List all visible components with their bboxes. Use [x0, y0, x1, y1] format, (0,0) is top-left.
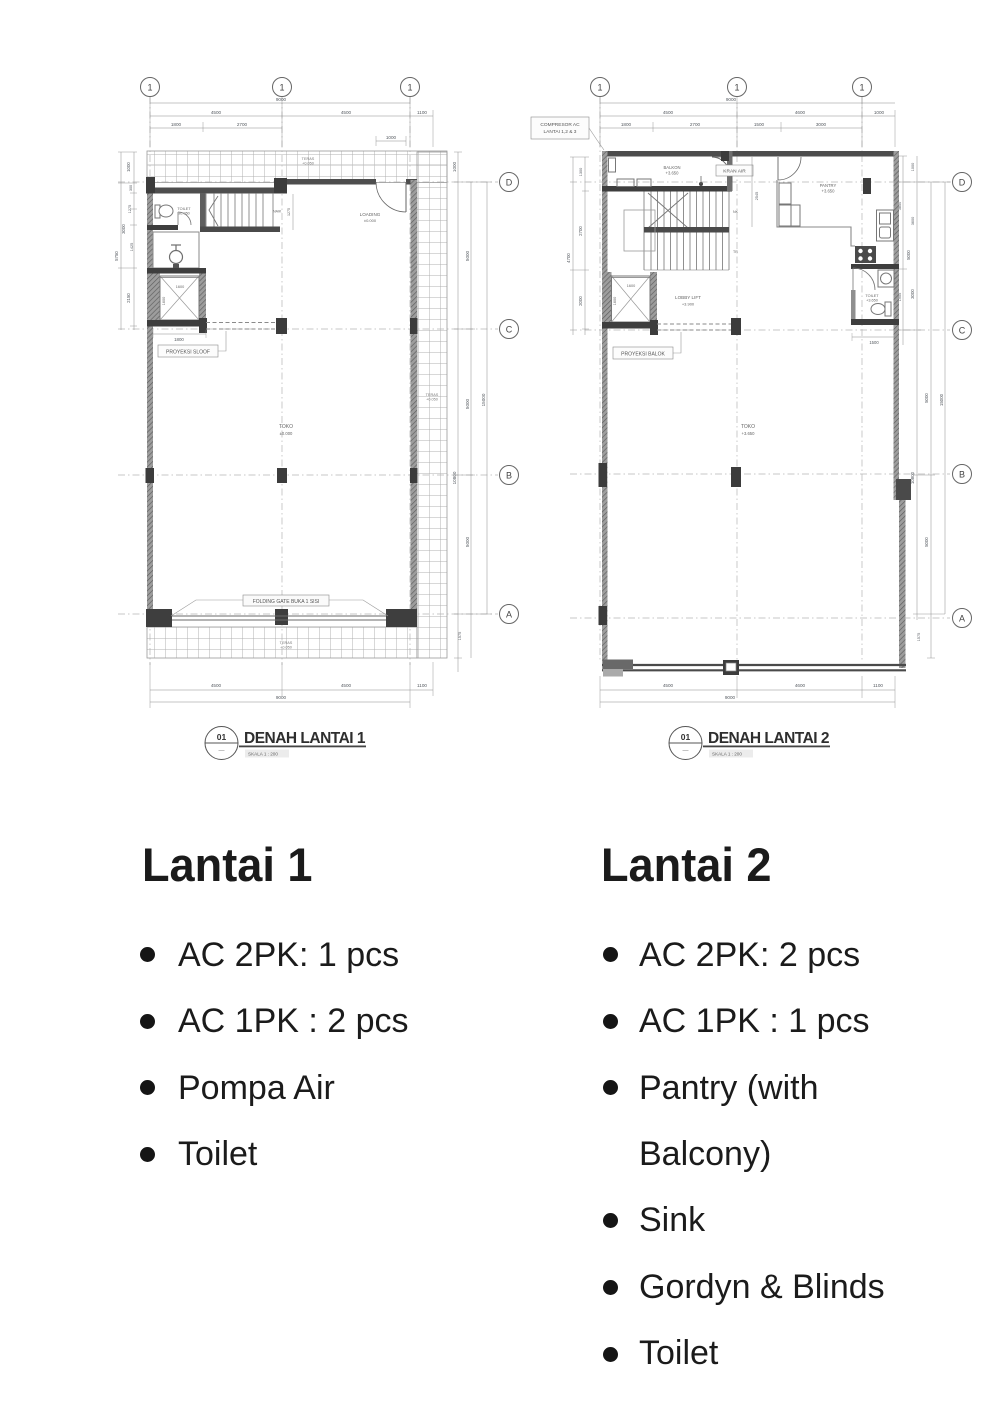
svg-text:4500: 4500: [211, 110, 222, 115]
svg-text:2545: 2545: [755, 192, 759, 200]
svg-text:1800: 1800: [621, 122, 632, 127]
svg-text:FOLDING GATE BUKA 1 SISI: FOLDING GATE BUKA 1 SISI: [253, 599, 320, 605]
svg-text:4500: 4500: [341, 683, 352, 688]
svg-text:9000: 9000: [725, 695, 736, 700]
svg-text:4500: 4500: [663, 110, 674, 115]
svg-text:B: B: [506, 471, 512, 481]
svg-text:1275: 1275: [287, 208, 291, 216]
svg-text:A: A: [506, 610, 512, 620]
svg-text:01: 01: [681, 732, 691, 742]
svg-text:—: —: [683, 748, 689, 754]
svg-text:2700: 2700: [690, 122, 701, 127]
svg-text:1600: 1600: [627, 284, 635, 288]
svg-text:5000: 5000: [924, 393, 929, 403]
svg-text:3000: 3000: [910, 289, 915, 299]
svg-text:TOILET: TOILET: [865, 294, 879, 298]
svg-text:1425: 1425: [130, 243, 134, 251]
svg-text:+3.650: +3.650: [742, 431, 756, 436]
svg-text:TOILET: TOILET: [177, 207, 191, 211]
svg-text:3000: 3000: [121, 224, 126, 234]
svg-text:PANTRY: PANTRY: [820, 183, 837, 188]
svg-text:—: —: [219, 748, 225, 754]
svg-text:COMPRESOR AC: COMPRESOR AC: [540, 122, 580, 128]
svg-text:4500: 4500: [341, 110, 352, 115]
svg-text:1800: 1800: [174, 337, 184, 342]
svg-text:1: 1: [734, 83, 739, 93]
svg-text:LOBBY LIFT: LOBBY LIFT: [675, 295, 701, 300]
svg-text:1000: 1000: [126, 162, 131, 172]
svg-text:DENAH LANTAI 1: DENAH LANTAI 1: [244, 730, 366, 747]
svg-text:1000: 1000: [452, 161, 457, 172]
svg-text:+3.650: +3.650: [666, 171, 680, 176]
svg-text:1600: 1600: [162, 297, 166, 305]
svg-text:TERAS: TERAS: [426, 393, 439, 397]
svg-text:BALKON: BALKON: [664, 165, 681, 170]
svg-text:LOADING: LOADING: [360, 212, 381, 217]
svg-text:1600: 1600: [613, 297, 617, 305]
svg-text:TOKO: TOKO: [741, 424, 755, 430]
svg-text:PROYEKSI SLOOF: PROYEKSI SLOOF: [166, 350, 210, 356]
svg-text:1575: 1575: [458, 632, 462, 640]
svg-text:TR: TR: [733, 250, 738, 254]
svg-text:+3.900: +3.900: [682, 302, 695, 307]
svg-text:4600: 4600: [795, 110, 806, 115]
svg-text:SKALA 1 : 200: SKALA 1 : 200: [248, 752, 278, 757]
svg-text:3600: 3600: [911, 217, 915, 225]
svg-text:1: 1: [597, 83, 602, 93]
svg-text:1575: 1575: [917, 633, 921, 641]
svg-text:B: B: [959, 470, 965, 480]
svg-text:1100: 1100: [417, 110, 427, 115]
svg-text:TERAS: TERAS: [280, 641, 293, 645]
svg-text:2700: 2700: [578, 226, 583, 236]
svg-text:KRAN AIR: KRAN AIR: [723, 169, 746, 175]
svg-text:PROYEKSI BALOK: PROYEKSI BALOK: [621, 352, 665, 358]
svg-text:9000: 9000: [726, 97, 737, 102]
svg-text:5000: 5000: [906, 250, 911, 260]
svg-text:9000: 9000: [276, 695, 287, 700]
svg-text:+0.050: +0.050: [302, 162, 314, 166]
svg-text:NK: NK: [733, 210, 739, 214]
svg-text:4500: 4500: [211, 683, 222, 688]
svg-text:2150: 2150: [126, 293, 131, 303]
svg-text:1000: 1000: [911, 163, 915, 171]
svg-text:D: D: [959, 178, 966, 188]
svg-text:10800: 10800: [452, 471, 457, 484]
svg-text:TOKO: TOKO: [279, 424, 293, 430]
svg-text:5000: 5000: [924, 537, 929, 547]
svg-text:1: 1: [279, 83, 284, 93]
svg-text:2700: 2700: [237, 122, 248, 127]
svg-text:9000: 9000: [276, 97, 287, 102]
svg-text:1: 1: [147, 83, 152, 93]
svg-text:4700: 4700: [566, 253, 571, 263]
svg-text:1300: 1300: [579, 168, 583, 176]
svg-text:01: 01: [217, 732, 227, 742]
svg-text:1: 1: [407, 83, 412, 93]
svg-text:C: C: [506, 325, 513, 335]
svg-text:1600: 1600: [176, 285, 184, 289]
svg-text:1100: 1100: [417, 683, 427, 688]
svg-text:+0.050: +0.050: [426, 398, 438, 402]
svg-text:SKALA 1 : 200: SKALA 1 : 200: [712, 752, 742, 757]
svg-text:4500: 4500: [663, 683, 674, 688]
svg-text:DENAH LANTAI 2: DENAH LANTAI 2: [708, 730, 829, 747]
svg-text:5000: 5000: [465, 536, 470, 547]
svg-text:A: A: [959, 614, 965, 624]
svg-text:5750: 5750: [114, 251, 119, 261]
svg-text:+0.050: +0.050: [280, 646, 292, 650]
svg-text:1: 1: [859, 83, 864, 93]
svg-text:3000: 3000: [816, 122, 827, 127]
svg-text:1500: 1500: [869, 340, 879, 345]
svg-text:1275: 1275: [128, 205, 132, 213]
svg-text:1500: 1500: [754, 122, 765, 127]
svg-text:1800: 1800: [171, 122, 182, 127]
svg-text:NAIK: NAIK: [273, 210, 282, 214]
svg-text:TERAS: TERAS: [302, 157, 315, 161]
svg-text:LANTAI 1,2 & 3: LANTAI 1,2 & 3: [544, 129, 577, 135]
svg-text:±0.050: ±0.050: [178, 212, 190, 216]
svg-text:15000: 15000: [481, 393, 486, 406]
svg-text:±0.000: ±0.000: [364, 218, 377, 223]
svg-text:1000: 1000: [386, 135, 397, 140]
svg-text:+3.650: +3.650: [866, 299, 878, 303]
svg-text:+3.650: +3.650: [822, 189, 836, 194]
svg-text:C: C: [959, 326, 966, 336]
svg-text:4600: 4600: [795, 683, 806, 688]
svg-text:5000: 5000: [465, 398, 470, 409]
svg-text:15000: 15000: [939, 393, 944, 406]
svg-text:300: 300: [129, 185, 133, 191]
svg-text:1000: 1000: [874, 110, 885, 115]
svg-text:1100: 1100: [873, 683, 883, 688]
svg-text:D: D: [506, 178, 513, 188]
svg-text:2000: 2000: [578, 296, 583, 306]
svg-text:5000: 5000: [465, 250, 470, 261]
svg-text:±0.000: ±0.000: [280, 431, 293, 436]
